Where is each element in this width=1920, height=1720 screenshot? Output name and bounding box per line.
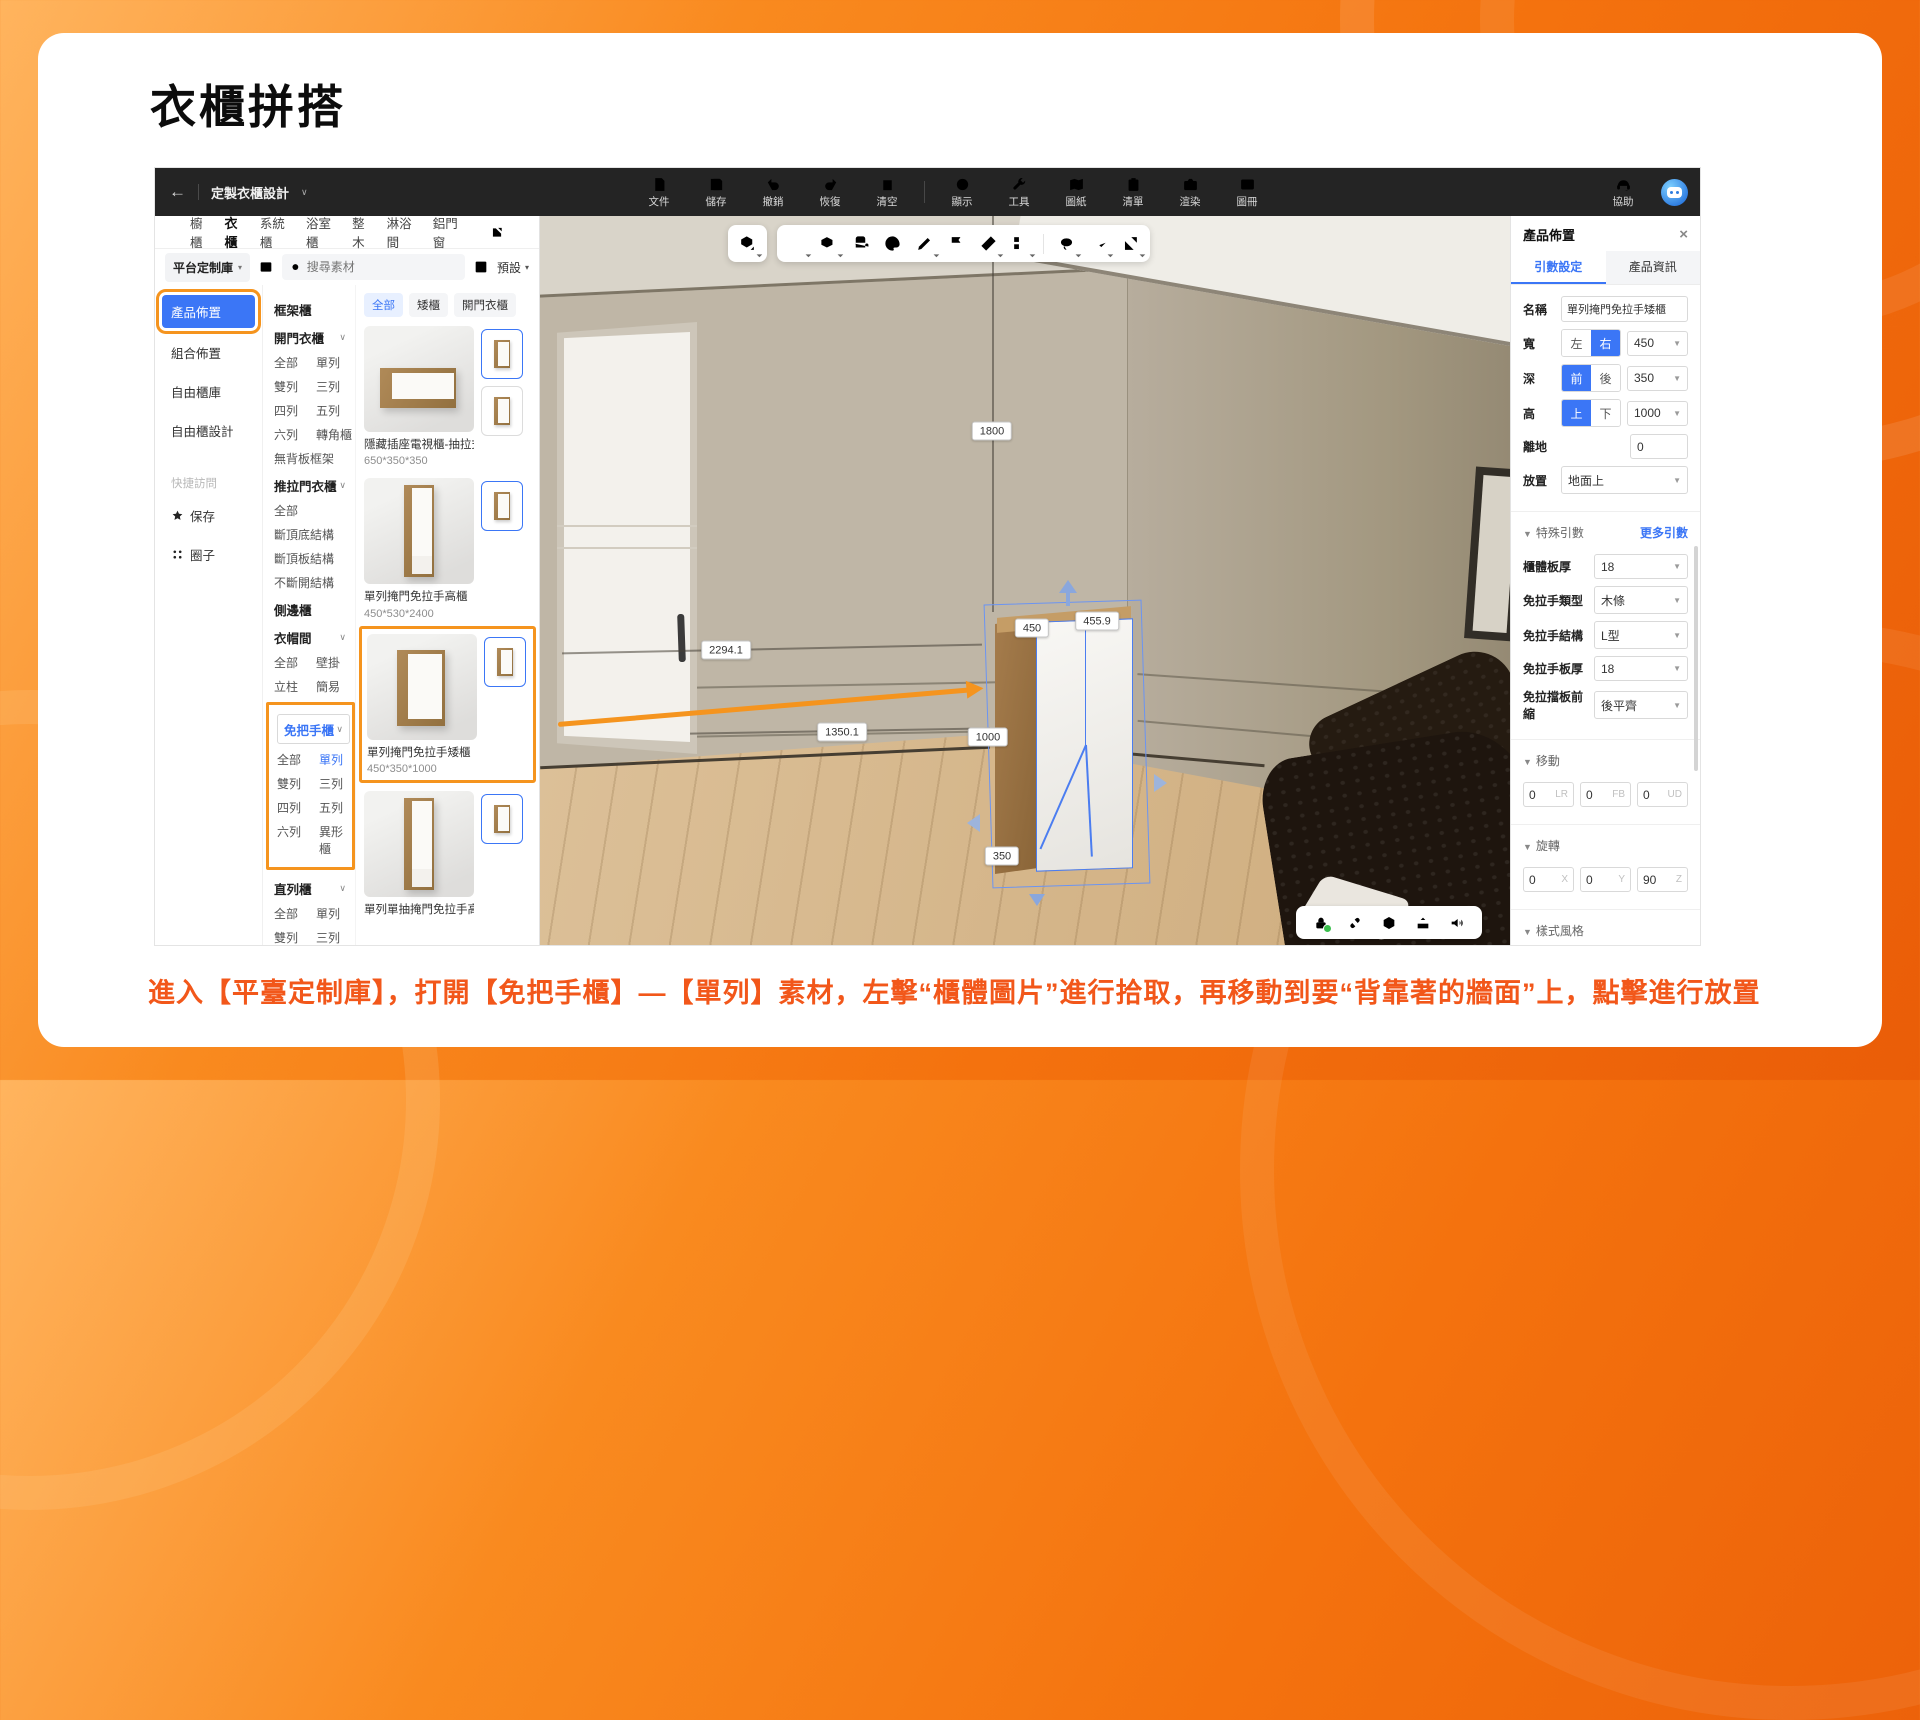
move-ud-input[interactable]: 0UD: [1637, 782, 1688, 807]
category-item[interactable]: 五列: [316, 402, 340, 419]
category-header[interactable]: 衣帽間∨: [274, 628, 355, 647]
share-icon: [1121, 234, 1140, 253]
cabinet-front-panel: [1036, 618, 1133, 871]
tab-cupboard[interactable]: 櫥櫃: [190, 213, 213, 251]
nav-item-product-layout[interactable]: 產品佈置: [162, 295, 255, 328]
dimension-label: 1800: [972, 422, 1012, 441]
height-label: 高: [1523, 405, 1555, 422]
tab-aluminum-door[interactable]: 鋁門窗: [433, 213, 468, 251]
height-direction-toggle[interactable]: 上下: [1561, 399, 1621, 427]
chevron-down-icon: ∨: [339, 332, 346, 343]
clear-button[interactable]: 清空: [865, 176, 909, 209]
product-size: 450*530*2400: [364, 608, 474, 620]
close-icon[interactable]: ×: [1679, 226, 1688, 243]
cube-icon: [1381, 915, 1397, 931]
rotate-x-input[interactable]: 0X: [1523, 867, 1574, 892]
product-name: 單列掩門免拉手矮櫃: [367, 746, 477, 760]
category-item-active[interactable]: 單列: [319, 751, 343, 768]
chip-low-cabinet[interactable]: 矮櫃: [409, 293, 448, 317]
height-select[interactable]: 1000▼: [1627, 401, 1688, 426]
category-list: 框架櫃 開門衣櫃∨ 全部單列 雙列三列 四列五列 六列轉角櫃 無背板框架 推拉門…: [263, 285, 355, 945]
upload-button[interactable]: [1415, 915, 1431, 931]
width-label: 寬: [1523, 335, 1555, 352]
category-item[interactable]: 五列: [319, 799, 343, 816]
param-label: 免拉擋板前縮: [1523, 688, 1594, 722]
special-params-label[interactable]: 特殊引數: [1536, 526, 1584, 540]
headset-icon: [1615, 176, 1632, 193]
category-item[interactable]: 異形櫃: [319, 823, 350, 857]
library-panel: 櫥櫃 衣櫃 系統櫃 浴室櫃 整木 淋浴間 鋁門窗 平台定制庫▾: [155, 216, 540, 945]
redo-icon: [822, 176, 839, 193]
app-screenshot: ← 定製衣櫃設計 ∨ 文件 儲存 撤銷 恢復 清空 顯示 工具 圖紙 清單 渲染…: [155, 168, 1700, 945]
more-params-link[interactable]: 更多引數: [1640, 524, 1688, 541]
product-name: 隱藏插座電視櫃-抽拉式: [364, 438, 474, 452]
category-item[interactable]: 三列: [316, 378, 340, 395]
columns-view-icon[interactable]: [258, 259, 274, 275]
param-label: 免拉手結構: [1523, 627, 1583, 644]
product-thumbnail[interactable]: [367, 634, 477, 740]
name-label: 名稱: [1523, 301, 1555, 318]
nav-item-free-cabinet-design[interactable]: 自由櫃設計: [162, 414, 255, 447]
file-button[interactable]: 文件: [637, 176, 681, 209]
quick-access-label: 快捷訪問: [162, 475, 255, 491]
redo-button[interactable]: 恢復: [808, 176, 852, 209]
move-down-arrow[interactable]: [1029, 894, 1045, 906]
lock-icon: [1313, 915, 1329, 931]
product-thumbnail[interactable]: [364, 478, 474, 584]
category-section-side-cabinet: 側邊櫃: [274, 600, 355, 619]
flag-icon: [947, 234, 966, 253]
wrench-icon: [1011, 176, 1028, 193]
tab-system-cabinet[interactable]: 系統櫃: [260, 213, 295, 251]
category-item[interactable]: 單列: [316, 354, 340, 371]
render-button[interactable]: 渲染: [1168, 176, 1212, 209]
viewport-bottom-tools: [1296, 906, 1482, 939]
popout-icon[interactable]: [490, 225, 504, 240]
align-button[interactable]: [947, 234, 966, 253]
search-box[interactable]: [282, 254, 465, 280]
list-check-icon: [1089, 234, 1108, 253]
map-icon: [1068, 176, 1085, 193]
category-item[interactable]: 全部: [274, 354, 316, 371]
dimension-label: 2294.1: [701, 641, 751, 660]
chevron-down-icon: ∨: [339, 632, 346, 643]
app-topbar: ← 定製衣櫃設計 ∨ 文件 儲存 撤銷 恢復 清空 顯示 工具 圖紙 清單 渲染…: [155, 168, 1700, 216]
category-item[interactable]: 全部: [274, 905, 316, 922]
category-item[interactable]: 六列: [274, 426, 316, 443]
view-cube-button[interactable]: [738, 234, 757, 253]
dimension-label: 455.9: [1075, 612, 1119, 631]
param-select[interactable]: 18▼: [1594, 554, 1688, 579]
dimension-label: 350: [985, 847, 1019, 866]
link-button[interactable]: [1347, 915, 1363, 931]
width-select[interactable]: 450▼: [1627, 331, 1688, 356]
display-button[interactable]: 顯示: [940, 176, 984, 209]
category-section-cloakroom: 衣帽間∨ 全部壁掛 立柱簡易: [274, 628, 355, 695]
category-item[interactable]: 三列: [316, 929, 340, 945]
move-fb-input[interactable]: 0FB: [1580, 782, 1631, 807]
category-section-straight-column: 直列櫃∨ 全部單列 雙列三列 四列五列 六列切角框架 切角: [274, 879, 355, 945]
library-source-select[interactable]: 平台定制庫▾: [165, 253, 250, 282]
dimension-label: 450: [1015, 619, 1049, 638]
category-item[interactable]: 單列: [316, 905, 340, 922]
divider: [924, 181, 925, 203]
product-card: 隱藏插座電視櫃-抽拉式 650*350*350: [364, 326, 531, 467]
category-section-frame: 框架櫃: [274, 300, 355, 319]
category-item[interactable]: 斷頂底結構: [274, 526, 334, 543]
back-icon[interactable]: ←: [169, 182, 186, 202]
product-card: 單列掩門免拉手高櫃 450*530*2400: [364, 478, 531, 619]
product-thumbnail[interactable]: [364, 791, 474, 897]
move-right-arrow[interactable]: [1154, 774, 1167, 792]
param-select[interactable]: 木條▼: [1594, 586, 1688, 614]
category-item[interactable]: 不斷開結構: [274, 574, 334, 591]
dimension-line: [992, 216, 994, 612]
nav-item-combo-layout[interactable]: 組合佈置: [162, 336, 255, 369]
product-variant-thumb[interactable]: [481, 329, 523, 379]
chevron-down-icon: ▾: [238, 263, 242, 272]
rotate-z-input[interactable]: 90Z: [1637, 867, 1688, 892]
category-item[interactable]: 三列: [319, 775, 343, 792]
list-icon[interactable]: [165, 225, 179, 240]
add-model-button[interactable]: [819, 234, 838, 253]
offground-input[interactable]: 0: [1630, 434, 1688, 459]
clipboard-icon: [1125, 176, 1142, 193]
image-icon: [1239, 176, 1256, 193]
param-select[interactable]: 18▼: [1594, 656, 1688, 681]
ruler-icon: [979, 234, 998, 253]
drawings-button[interactable]: 圖紙: [1054, 176, 1098, 209]
param-label: 櫃體板厚: [1523, 558, 1571, 575]
undo-icon: [765, 176, 782, 193]
param-label: 免拉手板厚: [1523, 660, 1583, 677]
dots-grid-icon: [171, 548, 184, 561]
scrollbar[interactable]: [1694, 546, 1698, 771]
checklist-button[interactable]: [1089, 234, 1108, 253]
move-left-arrow[interactable]: [967, 814, 980, 832]
speaker-icon: [1449, 915, 1465, 931]
category-item[interactable]: 轉角櫃: [316, 426, 352, 443]
category-item[interactable]: 全部: [277, 751, 319, 768]
product-card-highlighted: 單列掩門免拉手矮櫃 450*350*1000: [359, 626, 536, 783]
category-section-handleless: 免把手櫃∨ 全部單列 雙列三列 四列五列 六列異形櫃: [266, 702, 355, 870]
help-button[interactable]: 協助: [1601, 176, 1645, 209]
library-toolbar: 平台定制庫▾ 預設▾: [155, 249, 539, 285]
tab-product-info[interactable]: 產品資訊: [1606, 251, 1701, 284]
product-card: 單列單抽掩門免拉手高櫃: [364, 791, 531, 917]
chevron-down-icon: ∨: [339, 480, 346, 491]
search-input[interactable]: [307, 260, 457, 274]
move-section-label[interactable]: 移動: [1536, 754, 1560, 768]
divider: [198, 184, 199, 200]
rotate-y-input[interactable]: 0Y: [1580, 867, 1631, 892]
tab-solid-wood[interactable]: 整木: [352, 213, 375, 251]
palette-icon: [883, 234, 902, 253]
chevron-down-icon: ▾: [525, 263, 529, 272]
chevron-down-icon: ∨: [339, 883, 346, 894]
category-header[interactable]: 開門衣櫃∨: [274, 328, 355, 347]
save-button[interactable]: 儲存: [694, 176, 738, 209]
album-button[interactable]: 圖冊: [1225, 176, 1269, 209]
rotate-section-label[interactable]: 旋轉: [1536, 839, 1560, 853]
offground-label: 離地: [1523, 438, 1555, 455]
product-variant-thumb[interactable]: [481, 386, 523, 436]
product-thumbnail[interactable]: [364, 326, 474, 432]
category-header[interactable]: 推拉門衣櫃∨: [274, 476, 355, 495]
param-select[interactable]: 後平齊▼: [1594, 691, 1688, 719]
depth-select[interactable]: 350▼: [1627, 366, 1688, 391]
export-button[interactable]: [1121, 234, 1140, 253]
file-icon: [651, 176, 668, 193]
chevron-down-icon: ∨: [336, 724, 343, 735]
category-section-sliding-door: 推拉門衣櫃∨ 全部 斷頂底結構 斷頂板結構 不斷開結構: [274, 476, 355, 591]
star-icon: [171, 509, 184, 522]
depth-direction-toggle[interactable]: 前後: [1561, 364, 1621, 392]
sound-button[interactable]: [1449, 915, 1465, 931]
library-nav: 產品佈置 組合佈置 自由櫃庫 自由櫃設計 快捷訪問 保存 圈子: [155, 285, 263, 945]
nav-item-saved[interactable]: 保存: [162, 499, 255, 532]
avatar[interactable]: [1661, 179, 1688, 206]
category-header[interactable]: 框架櫃: [274, 300, 355, 319]
param-select[interactable]: L型▼: [1594, 621, 1688, 649]
inspector-panel: 產品佈置 × 引數設定 產品資訊 名稱 單列掩門免拉手矮櫃 寬 左右 450▼: [1510, 216, 1700, 945]
tutorial-caption: 進入【平臺定制庫】，打開【免把手櫃】—【單列】素材，左擊“櫃體圖片”進行拾取，再…: [148, 971, 1788, 1010]
lasso-select-button[interactable]: [1057, 234, 1076, 253]
product-variant-thumb[interactable]: [481, 794, 523, 844]
category-item[interactable]: 四列: [277, 799, 319, 816]
paint-button[interactable]: [915, 234, 934, 253]
topbar-actions: 文件 儲存 撤銷 恢復 清空 顯示 工具 圖紙 清單 渲染 圖冊: [637, 168, 1269, 216]
category-section-hinged-door: 開門衣櫃∨ 全部單列 雙列三列 四列五列 六列轉角櫃 無背板框架: [274, 328, 355, 467]
category-header[interactable]: 免把手櫃∨: [277, 714, 350, 744]
lasso-icon: [1057, 234, 1076, 253]
placement-label: 放置: [1523, 472, 1555, 489]
tab-wardrobe[interactable]: 衣櫃: [224, 213, 248, 251]
wall-seam: [690, 681, 998, 688]
link-icon: [1347, 915, 1363, 931]
placement-select[interactable]: 地面上▼: [1561, 466, 1688, 494]
save-icon: [708, 176, 725, 193]
search-icon: [290, 261, 302, 274]
chip-hinged-wardrobe[interactable]: 開門衣櫃: [454, 293, 516, 317]
param-label: 免拉手類型: [1523, 592, 1583, 609]
filter-chips: 全部 矮櫃 開門衣櫃: [364, 293, 531, 317]
3d-viewport[interactable]: 1800 2294.1 1350.1 450 455.9 1000 350: [540, 216, 1510, 945]
category-item[interactable]: 雙列: [274, 378, 316, 395]
move-up-arrow[interactable]: [1059, 580, 1077, 593]
style-section-label[interactable]: 樣式風格: [1536, 924, 1584, 938]
plus-icon: [787, 234, 806, 253]
category-header[interactable]: 側邊櫃: [274, 600, 355, 619]
page-title: 衣櫃拼搭: [150, 71, 346, 137]
move-lr-input[interactable]: 0LR: [1523, 782, 1574, 807]
name-input[interactable]: 單列掩門免拉手矮櫃: [1561, 296, 1688, 322]
category-item[interactable]: 雙列: [277, 775, 319, 792]
measure-button[interactable]: [979, 234, 998, 253]
category-item[interactable]: 四列: [274, 402, 316, 419]
3d-mode-button[interactable]: [1381, 915, 1397, 931]
furniture-button[interactable]: [851, 234, 870, 253]
dimension-label: 1350.1: [817, 723, 867, 742]
brush-icon: [915, 234, 934, 253]
category-item[interactable]: 全部: [274, 654, 316, 671]
minimize-icon[interactable]: [515, 225, 529, 240]
dimension-label: 1000: [968, 728, 1008, 747]
inspector-title: 產品佈置: [1523, 225, 1575, 244]
category-item[interactable]: 無背板框架: [274, 450, 334, 467]
nav-item-free-cabinet-lib[interactable]: 自由櫃庫: [162, 375, 255, 408]
category-item[interactable]: 簡易: [316, 678, 340, 695]
cube-arrow-icon: [738, 234, 757, 253]
category-item[interactable]: 雙列: [274, 929, 316, 945]
category-item[interactable]: 斷頂板結構: [274, 550, 334, 567]
library-tabs: 櫥櫃 衣櫃 系統櫃 浴室櫃 整木 淋浴間 鋁門窗: [155, 216, 539, 249]
display-icon: [954, 176, 971, 193]
nav-item-circle[interactable]: 圈子: [162, 538, 255, 571]
category-item[interactable]: 立柱: [274, 678, 316, 695]
divider: [1043, 234, 1044, 254]
lock-button[interactable]: [1313, 915, 1329, 931]
width-direction-toggle[interactable]: 左右: [1561, 329, 1621, 357]
chip-all[interactable]: 全部: [364, 293, 403, 317]
tab-shower[interactable]: 淋浴間: [387, 213, 422, 251]
product-variant-thumb[interactable]: [481, 481, 523, 531]
category-item[interactable]: 六列: [277, 823, 319, 857]
product-list: 全部 矮櫃 開門衣櫃 隱藏插座電視櫃-抽拉式 650*350*350: [355, 285, 539, 945]
product-name: 單列單抽掩門免拉手高櫃: [364, 903, 474, 917]
tab-bathroom-cabinet[interactable]: 浴室櫃: [306, 213, 341, 251]
add-button[interactable]: [787, 234, 806, 253]
product-name: 單列掩門免拉手高櫃: [364, 590, 474, 604]
placed-cabinet[interactable]: [995, 614, 1137, 882]
document-title[interactable]: 定製衣櫃設計: [211, 183, 289, 202]
depth-label: 深: [1523, 370, 1555, 387]
product-size: 650*350*350: [364, 455, 474, 467]
layout-list-button[interactable]: [1011, 234, 1030, 253]
preset-button[interactable]: 預設▾: [497, 259, 529, 276]
clear-icon: [879, 176, 896, 193]
list-button[interactable]: 清單: [1111, 176, 1155, 209]
product-size: 450*350*1000: [367, 763, 477, 775]
upload-icon: [1415, 915, 1431, 931]
product-variant-thumb[interactable]: [484, 637, 526, 687]
tab-parameters[interactable]: 引數設定: [1511, 251, 1606, 284]
viewport-toolbar: [728, 225, 1150, 262]
cards-icon: [1011, 234, 1030, 253]
material-button[interactable]: [883, 234, 902, 253]
armchair-icon: [851, 234, 870, 253]
tools-button[interactable]: 工具: [997, 176, 1041, 209]
camera-icon: [1182, 176, 1199, 193]
content-card: 衣櫃拼搭 ← 定製衣櫃設計 ∨ 文件 儲存 撤銷 恢復 清空 顯示 工具 圖紙 …: [38, 33, 1882, 1047]
layout-icon[interactable]: [473, 259, 489, 275]
chevron-down-icon[interactable]: ∨: [301, 187, 308, 198]
door: [557, 322, 697, 754]
category-header[interactable]: 直列櫃∨: [274, 879, 355, 898]
cube-plus-icon: [819, 234, 838, 253]
category-item[interactable]: 全部: [274, 502, 316, 519]
category-item[interactable]: 壁掛: [316, 654, 340, 671]
undo-button[interactable]: 撤銷: [751, 176, 795, 209]
